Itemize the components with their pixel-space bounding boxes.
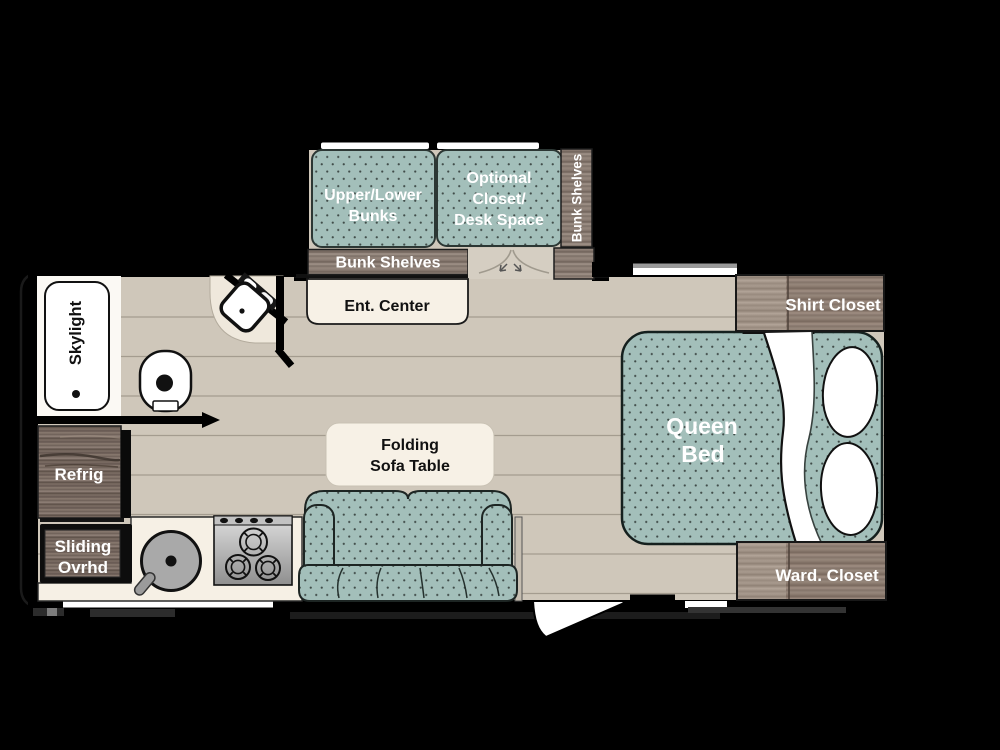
svg-text:Bunks: Bunks (349, 208, 398, 225)
svg-text:Optional: Optional (467, 170, 532, 187)
svg-text:Ent. Center: Ent. Center (344, 298, 429, 315)
svg-text:Ovrhd: Ovrhd (58, 558, 108, 577)
svg-text:Folding: Folding (381, 437, 439, 454)
svg-text:Upper/Lower: Upper/Lower (324, 187, 422, 204)
svg-text:Bed: Bed (681, 441, 724, 467)
svg-text:Ward. Closet: Ward. Closet (775, 566, 879, 585)
svg-text:Sofa Table: Sofa Table (370, 458, 450, 475)
svg-text:Refrig: Refrig (54, 465, 103, 484)
svg-text:Bunk Shelves: Bunk Shelves (570, 154, 585, 243)
svg-text:Desk Space: Desk Space (454, 212, 544, 229)
svg-text:Skylight: Skylight (67, 300, 85, 365)
svg-text:Sliding: Sliding (55, 537, 112, 556)
svg-text:Closet/: Closet/ (472, 191, 526, 208)
svg-text:Queen: Queen (666, 413, 738, 439)
svg-text:Shirt Closet: Shirt Closet (785, 296, 881, 315)
svg-text:Bunk Shelves: Bunk Shelves (336, 255, 441, 272)
